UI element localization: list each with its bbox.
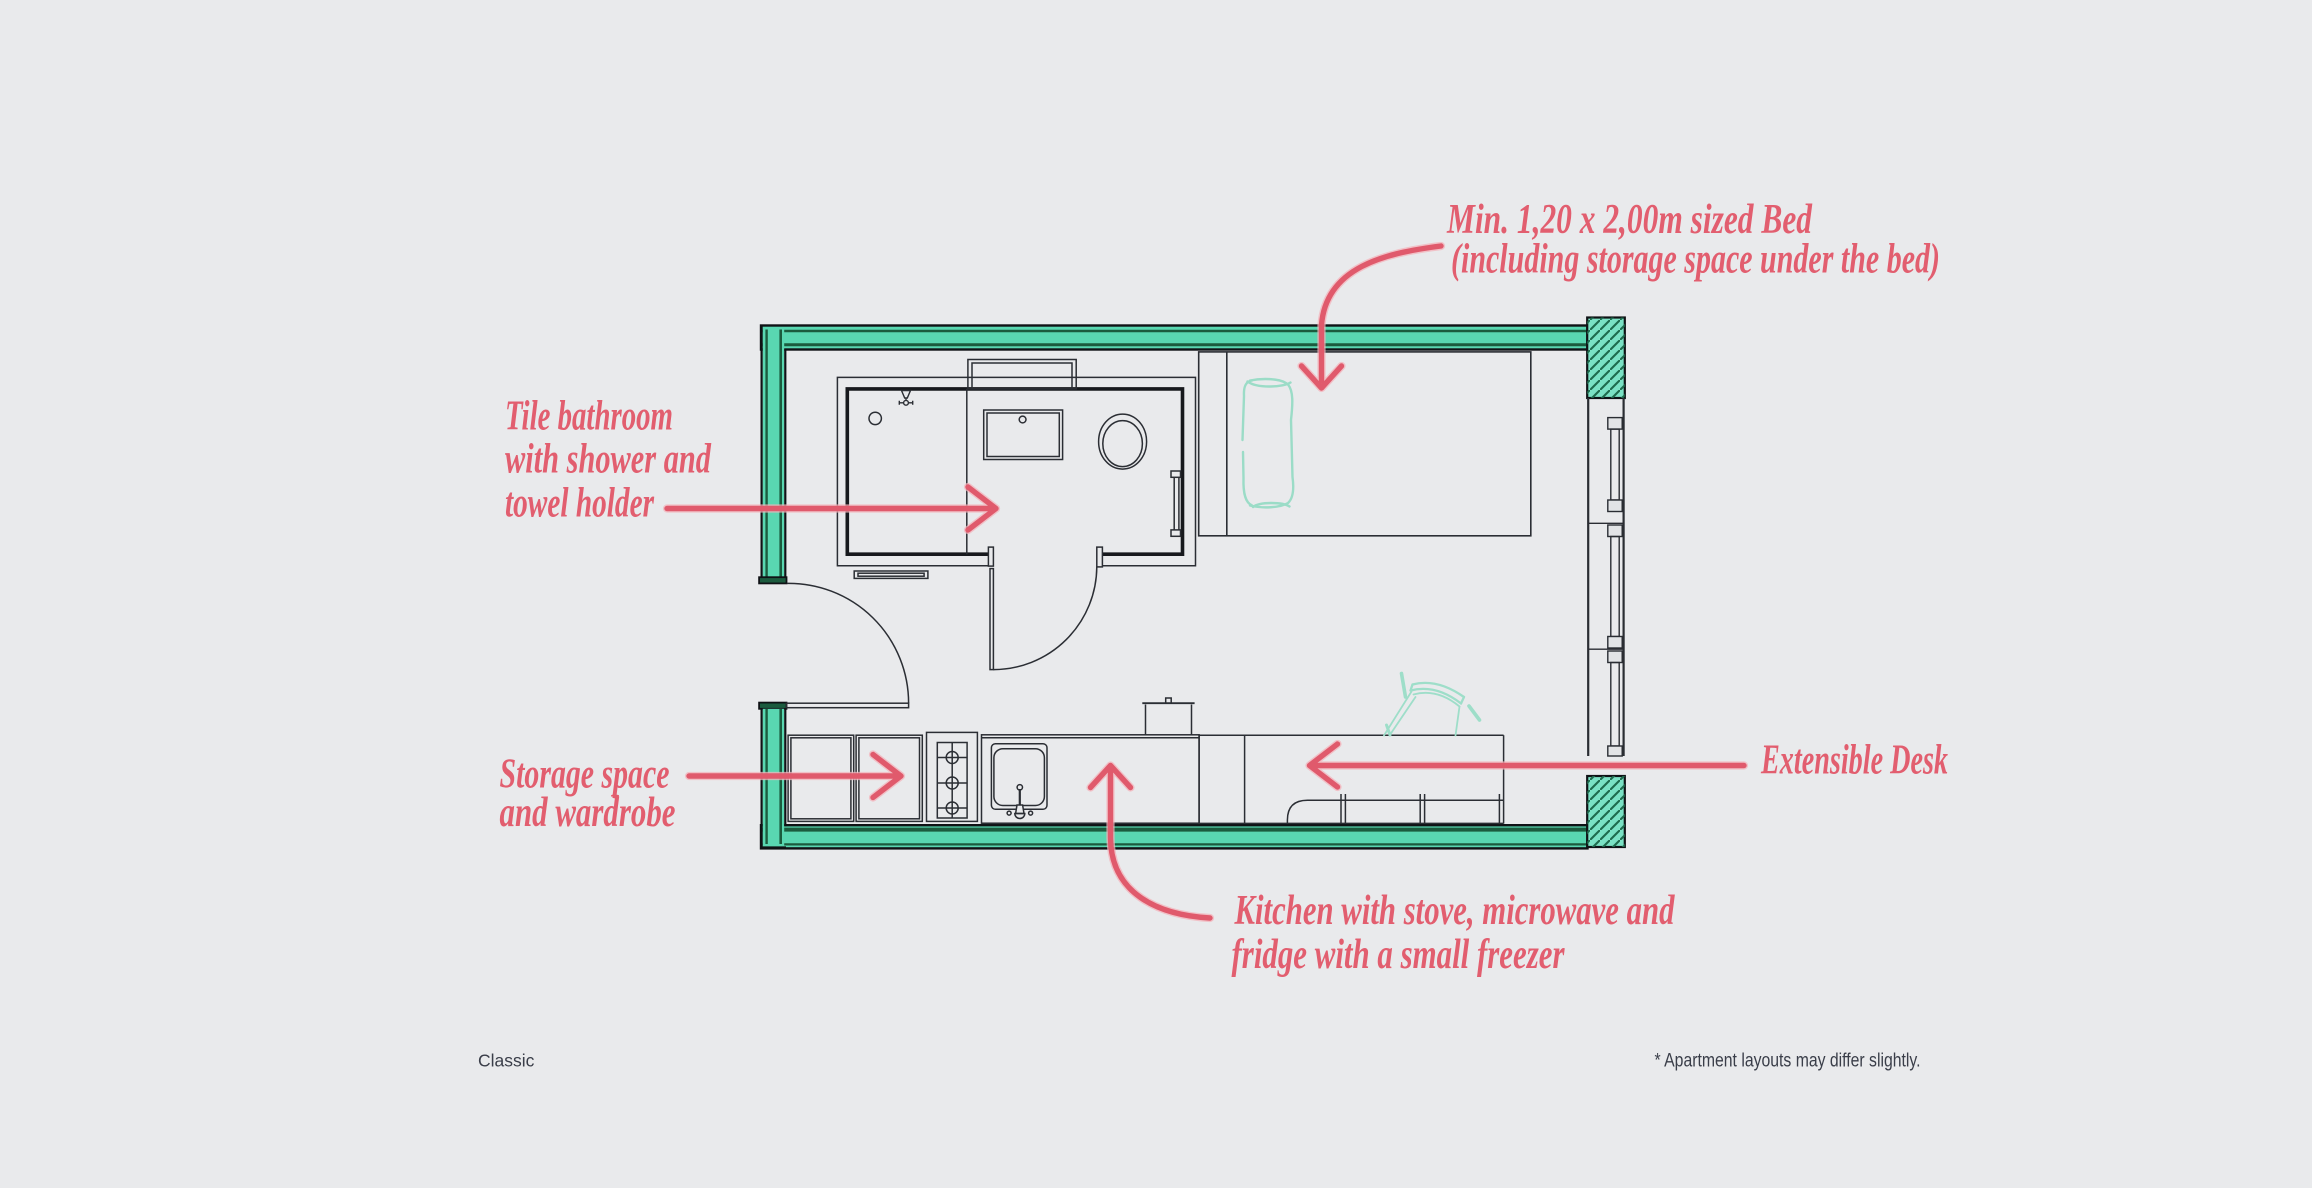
- svg-text:and wardrobe: and wardrobe: [500, 790, 676, 836]
- svg-text:Extensible Desk: Extensible Desk: [1760, 738, 1948, 784]
- svg-text:towel holder: towel holder: [505, 481, 654, 527]
- svg-text:Tile bathroom: Tile bathroom: [505, 394, 673, 440]
- svg-text:(including storage space under: (including storage space under the bed): [1451, 237, 1940, 283]
- svg-text:with shower and: with shower and: [505, 437, 712, 483]
- svg-text:Kitchen with stove, microwave: Kitchen with stove, microwave and: [1234, 888, 1675, 934]
- svg-text:Classic: Classic: [478, 1051, 535, 1071]
- svg-text:fridge with a small freezer: fridge with a small freezer: [1232, 932, 1565, 978]
- svg-text:* Apartment layouts may differ: * Apartment layouts may differ slightly.: [1655, 1051, 1921, 1072]
